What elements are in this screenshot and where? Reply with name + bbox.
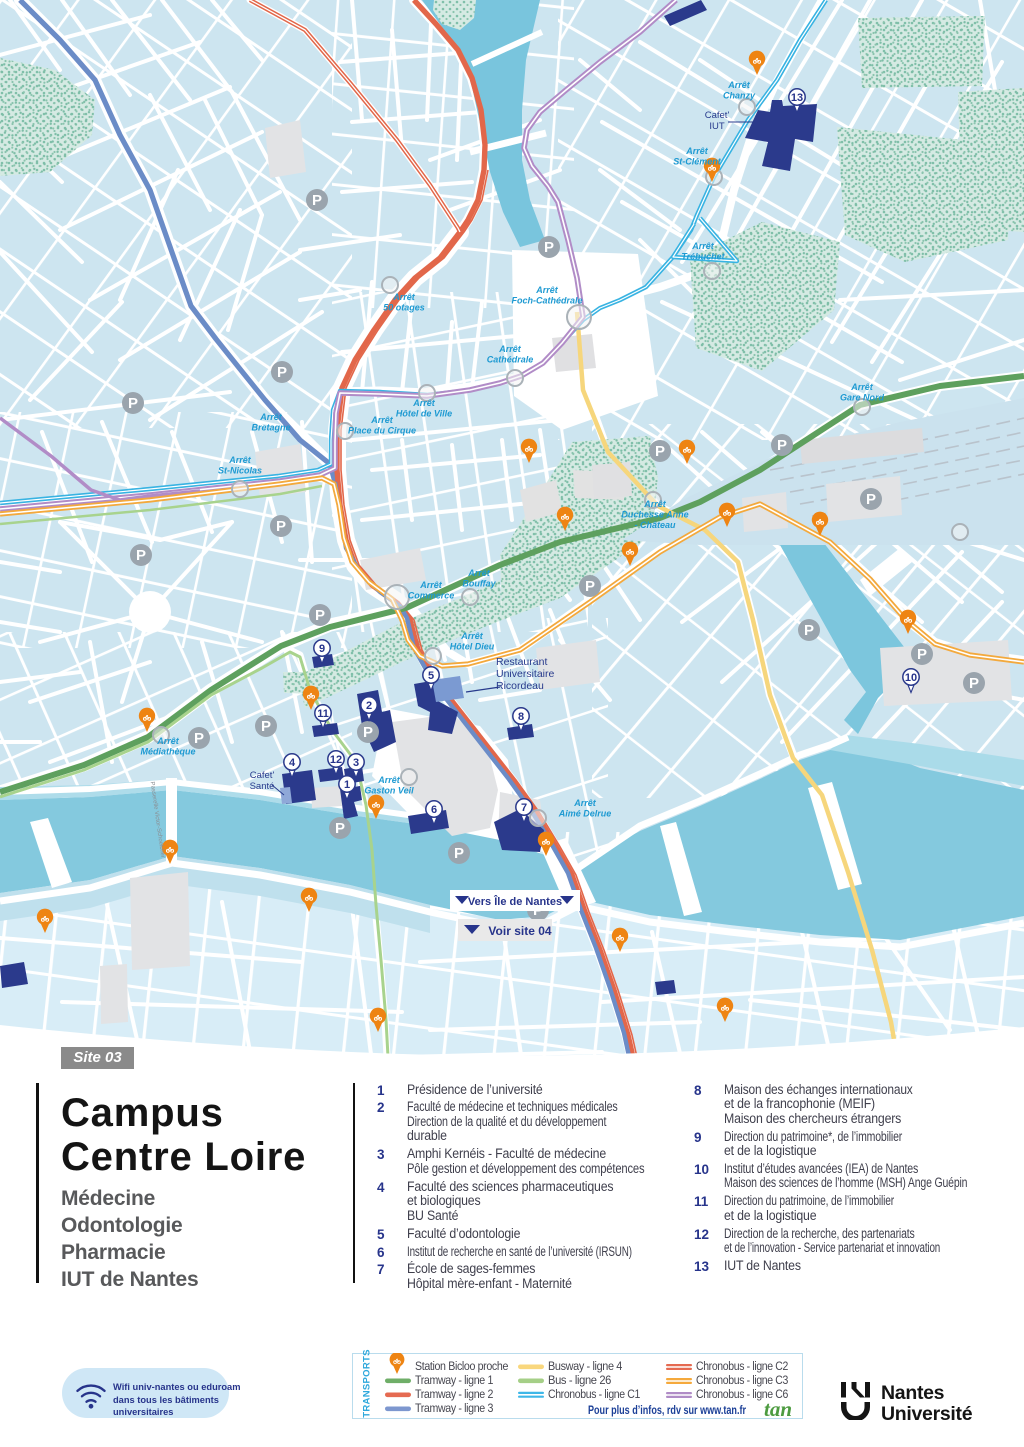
svg-text:P: P [655,443,665,460]
svg-text:P: P [969,675,979,692]
svg-text:Commerce: Commerce [408,591,455,601]
svg-text:Arrêt: Arrêt [460,631,484,641]
svg-text:Universitaire: Universitaire [496,668,555,680]
svg-text:Arrêt: Arrêt [467,568,491,578]
svg-text:P: P [194,730,204,747]
svg-text:P: P [315,607,325,624]
svg-text:P: P [261,718,271,735]
svg-text:St-Nicolas: St-Nicolas [218,466,262,476]
svg-text:P: P [363,724,373,741]
svg-text:Bus - ligne 26: Bus - ligne 26 [548,1373,612,1387]
svg-text:Busway - ligne 4: Busway - ligne 4 [548,1359,623,1373]
svg-text:13: 13 [791,92,803,104]
svg-text:P: P [136,547,146,564]
svg-text:Bretagne: Bretagne [251,423,290,433]
svg-text:Station Bicloo proche: Station Bicloo proche [415,1359,509,1373]
svg-text:Arrêt: Arrêt [412,398,436,408]
svg-text:Arrêt: Arrêt [419,580,443,590]
svg-text:Arrêt: Arrêt [377,775,401,785]
svg-text:P: P [312,192,322,209]
svg-text:Foch-Cathédrale: Foch-Cathédrale [511,296,582,306]
svg-text:Trébuchet: Trébuchet [681,252,725,262]
svg-text:Restaurant: Restaurant [496,656,547,668]
svg-text:P: P [277,364,287,381]
svg-text:Arrêt: Arrêt [535,285,559,295]
svg-text:Pour plus d’infos, rdv sur www: Pour plus d’infos, rdv sur www.tan.fr [588,1403,746,1417]
svg-text:50 otages: 50 otages [383,303,425,313]
svg-text:Arrêt: Arrêt [392,292,416,302]
svg-text:5: 5 [428,670,434,682]
svg-text:Arrêt: Arrêt [156,736,180,746]
svg-text:Arrêt: Arrêt [727,80,751,90]
svg-text:- Château: - Château [634,520,676,530]
svg-text:tan: tan [764,1397,792,1420]
svg-text:Gaston Veil: Gaston Veil [364,786,414,796]
svg-text:2: 2 [366,700,372,712]
svg-text:Cafet': Cafet' [705,110,730,121]
svg-text:Hôtel de Ville: Hôtel de Ville [396,409,452,419]
svg-text:Cafet': Cafet' [250,770,275,781]
svg-text:9: 9 [319,643,325,655]
svg-text:Aimé Delrue: Aimé Delrue [558,809,612,819]
svg-text:P: P [917,646,927,663]
svg-text:P: P [335,820,345,837]
svg-text:Arrêt: Arrêt [498,344,522,354]
svg-text:6: 6 [431,804,437,816]
svg-text:Arrêt: Arrêt [259,412,283,422]
svg-text:Gare Nord: Gare Nord [840,393,885,403]
svg-text:Voir site 04: Voir site 04 [488,924,551,938]
svg-text:Santé: Santé [250,781,275,792]
svg-text:Arrêt: Arrêt [685,146,709,156]
svg-text:Arrêt: Arrêt [228,455,252,465]
svg-text:P: P [585,578,595,595]
svg-text:Hôtel Dieu: Hôtel Dieu [450,642,495,652]
svg-text:Tramway - ligne 1: Tramway - ligne 1 [415,1373,494,1387]
svg-text:Place du Cirque: Place du Cirque [348,426,416,436]
svg-text:P: P [276,518,286,535]
svg-text:IUT: IUT [709,121,725,132]
svg-text:P: P [544,239,554,256]
svg-text:P: P [777,437,787,454]
svg-text:Chronobus - ligne C1: Chronobus - ligne C1 [548,1387,641,1401]
svg-text:Bouffay: Bouffay [462,579,496,589]
svg-text:Duchesse Anne: Duchesse Anne [621,510,688,520]
svg-text:Médiathèque: Médiathèque [140,747,195,757]
svg-text:Vers Île de Nantes: Vers Île de Nantes [468,895,562,908]
svg-text:Tramway - ligne 3: Tramway - ligne 3 [415,1401,494,1415]
svg-text:Ricordeau: Ricordeau [496,680,544,692]
svg-text:8: 8 [518,711,524,723]
svg-text:7: 7 [521,802,527,814]
svg-text:11: 11 [317,708,329,720]
svg-text:10: 10 [905,672,917,684]
svg-text:P: P [128,395,138,412]
svg-text:Arrêt: Arrêt [850,382,874,392]
svg-text:Arrêt: Arrêt [643,499,667,509]
svg-text:P: P [454,845,464,862]
svg-text:Arrêt: Arrêt [573,798,597,808]
svg-text:Tramway - ligne 2: Tramway - ligne 2 [415,1387,494,1401]
svg-text:Arrêt: Arrêt [691,241,715,251]
svg-text:Chronobus - ligne C2: Chronobus - ligne C2 [696,1359,789,1373]
svg-text:12: 12 [330,754,342,766]
svg-text:4: 4 [289,757,296,769]
svg-text:Chanzy: Chanzy [723,91,756,101]
svg-text:Cathédrale: Cathédrale [487,355,534,365]
svg-text:3: 3 [353,757,359,769]
svg-text:St-Clément: St-Clément [673,157,722,167]
svg-text:Arrêt: Arrêt [370,415,394,425]
svg-text:Chronobus - ligne C3: Chronobus - ligne C3 [696,1373,789,1387]
svg-text:1: 1 [344,779,350,791]
svg-text:P: P [866,491,876,508]
svg-text:P: P [804,622,814,639]
